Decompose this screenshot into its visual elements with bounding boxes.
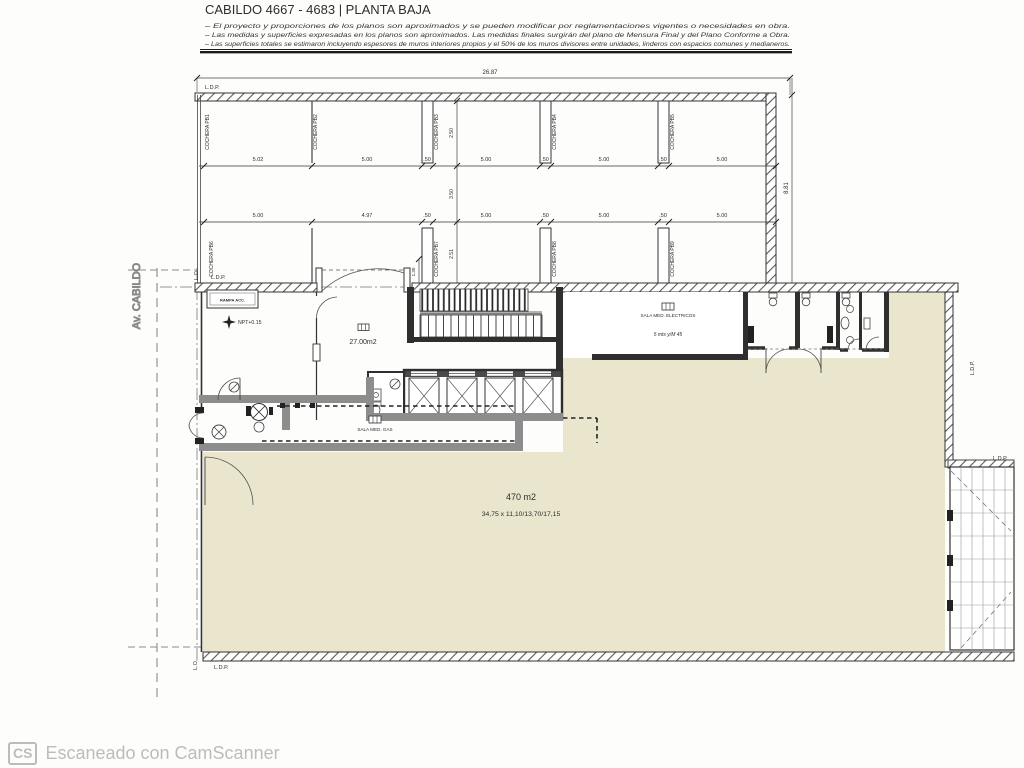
lo-label-bottom: L.O. [193, 659, 199, 670]
driveway-gate-arc [322, 269, 404, 291]
svg-text:.50: .50 [423, 157, 431, 163]
dim-aisle: 3.50 [449, 189, 455, 199]
patio-area-label: 470 m2 [506, 492, 536, 502]
main-bottom-wall [203, 652, 1014, 661]
svg-text:5.00: 5.00 [717, 157, 728, 163]
svg-text:5.02: 5.02 [253, 157, 264, 163]
grid-area [947, 460, 1014, 650]
svg-text:4.97: 4.97 [362, 213, 373, 219]
electrical-meter-room: SALA MED. ELECTRICOS 5 mts y/M 45 [565, 292, 748, 360]
row2-dims: 5.00 4.97 .50 5.00 .50 5.00 .50 5.00 [253, 213, 728, 219]
cochera-pb3-label: COCHERA PB3 [434, 114, 440, 150]
sink-icon [841, 317, 849, 329]
svg-text:5.00: 5.00 [599, 157, 610, 163]
svg-text:5.00: 5.00 [717, 213, 728, 219]
hall-door-arc [316, 297, 337, 318]
row1-stall-labels: COCHERA PB1 COCHERA PB2 COCHERA PB3 COCH… [205, 114, 676, 150]
svg-text:5.00: 5.00 [599, 213, 610, 219]
ldp-label-right-vertical: L.D.P. [970, 360, 976, 375]
svg-text:5.00: 5.00 [481, 157, 492, 163]
svg-text:.50: .50 [659, 213, 667, 219]
electrical-room-label: SALA MED. ELECTRICOS [641, 313, 696, 318]
electrical-room-note: 5 mts y/M 45 [654, 332, 683, 338]
meter-sign-icon [662, 303, 674, 310]
garage-top-wall [195, 93, 776, 101]
street-name-label: Av. CABILDO [131, 262, 143, 329]
wall-box-icon [864, 318, 870, 329]
lo-label-garage: L.O. [194, 269, 200, 280]
panel-icon [748, 326, 754, 343]
cochera-pb5-label: COCHERA PB5 [670, 114, 676, 150]
scanned-floor-plan-page: 470 m2 34,75 x 11,10/13,70/17,15 CABILDO… [0, 0, 1024, 768]
hall-door-leaf [313, 344, 320, 361]
ldp-label-garage-top: L.D.P. [205, 85, 220, 91]
svg-text:.50: .50 [423, 213, 431, 219]
note-line-2: – Las medidas y superficies expresadas e… [204, 32, 790, 39]
garage-block: 26.87 L.D.P. 8.81 5.02 5.00 .50 5.00 .50… [194, 70, 795, 292]
cochera-pb7-label: COCHERA PB7 [434, 241, 440, 277]
svg-text:.50: .50 [541, 213, 549, 219]
cochera-pb8-label: COCHERA PB8 [552, 241, 558, 277]
svg-text:5.00: 5.00 [362, 157, 373, 163]
dim-total-width: 26.87 [482, 70, 498, 76]
hall-sign-icon [358, 324, 369, 331]
row2-stall-labels: COCHERA PB6 COCHERA PB7 COCHERA PB8 COCH… [209, 241, 676, 277]
ldp-label-bottom: L.D.P. [214, 665, 229, 671]
svg-text:.50: .50 [541, 157, 549, 163]
svg-text:5.00: 5.00 [481, 213, 492, 219]
garage-right-wall [766, 93, 776, 292]
gas-room-label: SALA MED. GAS [357, 427, 392, 432]
row1-dims: 5.02 5.00 .50 5.00 .50 5.00 .50 5.00 [253, 157, 728, 163]
floor-plan-drawing: 470 m2 34,75 x 11,10/13,70/17,15 CABILDO… [0, 0, 1024, 768]
patio-dimensions-label: 34,75 x 11,10/13,70/17,15 [482, 511, 561, 518]
title-block: CABILDO 4667 - 4683 | PLANTA BAJA – El p… [200, 2, 792, 52]
dim-total-height: 8.81 [784, 182, 790, 194]
main-right-wall [945, 292, 953, 467]
camscanner-text: Escaneado con CamScanner [45, 743, 279, 764]
cochera-pb4-label: COCHERA PB4 [552, 114, 558, 150]
hall-area-label: 27.00m2 [349, 339, 376, 346]
lobby: RAMPA ACC. NPT+0.15 27.00m2 [202, 290, 377, 455]
stair-flight-upper [420, 289, 528, 311]
svg-text:.50: .50 [659, 157, 667, 163]
page-title: CABILDO 4667 - 4683 | PLANTA BAJA [205, 2, 431, 17]
ramp-label: RAMPA ACC. [220, 298, 245, 303]
panel-icon [827, 326, 833, 343]
stairs [407, 287, 589, 370]
street-door-arcs [189, 413, 203, 438]
cochera-pb2-label: COCHERA PB2 [313, 114, 319, 150]
elevator-bank [368, 370, 562, 419]
dim-depth-row2: 2.51 [449, 249, 455, 259]
cochera-pb1-label: COCHERA PB1 [205, 114, 211, 150]
door-symbol-icon [254, 422, 264, 432]
note-line-3: – Las superficies totales se estimaron i… [204, 41, 790, 48]
dim-depth-row1: 2.50 [449, 128, 455, 138]
dim-entry: 1.30 [411, 267, 416, 276]
cochera-pb6-label: COCHERA PB6 [209, 241, 215, 277]
gas-sign-icon [369, 416, 381, 423]
elevator-cars [409, 378, 553, 414]
level-label: NPT+0.15 [238, 320, 262, 326]
door-symbol-icon [847, 306, 854, 313]
note-line-1: – El proyecto y proporciones de los plan… [204, 23, 791, 30]
camscanner-watermark: CS Escaneado con CamScanner [8, 742, 280, 765]
level-marker-icon [222, 315, 236, 329]
door-symbol-icon [847, 337, 854, 344]
cochera-pb9-label: COCHERA PB9 [670, 241, 676, 277]
ldp-label-garage-bottom: L.D.P. [211, 275, 226, 281]
svg-text:5.00: 5.00 [253, 213, 264, 219]
stair-flight-lower [420, 315, 542, 337]
camscanner-logo-icon: CS [8, 742, 37, 765]
